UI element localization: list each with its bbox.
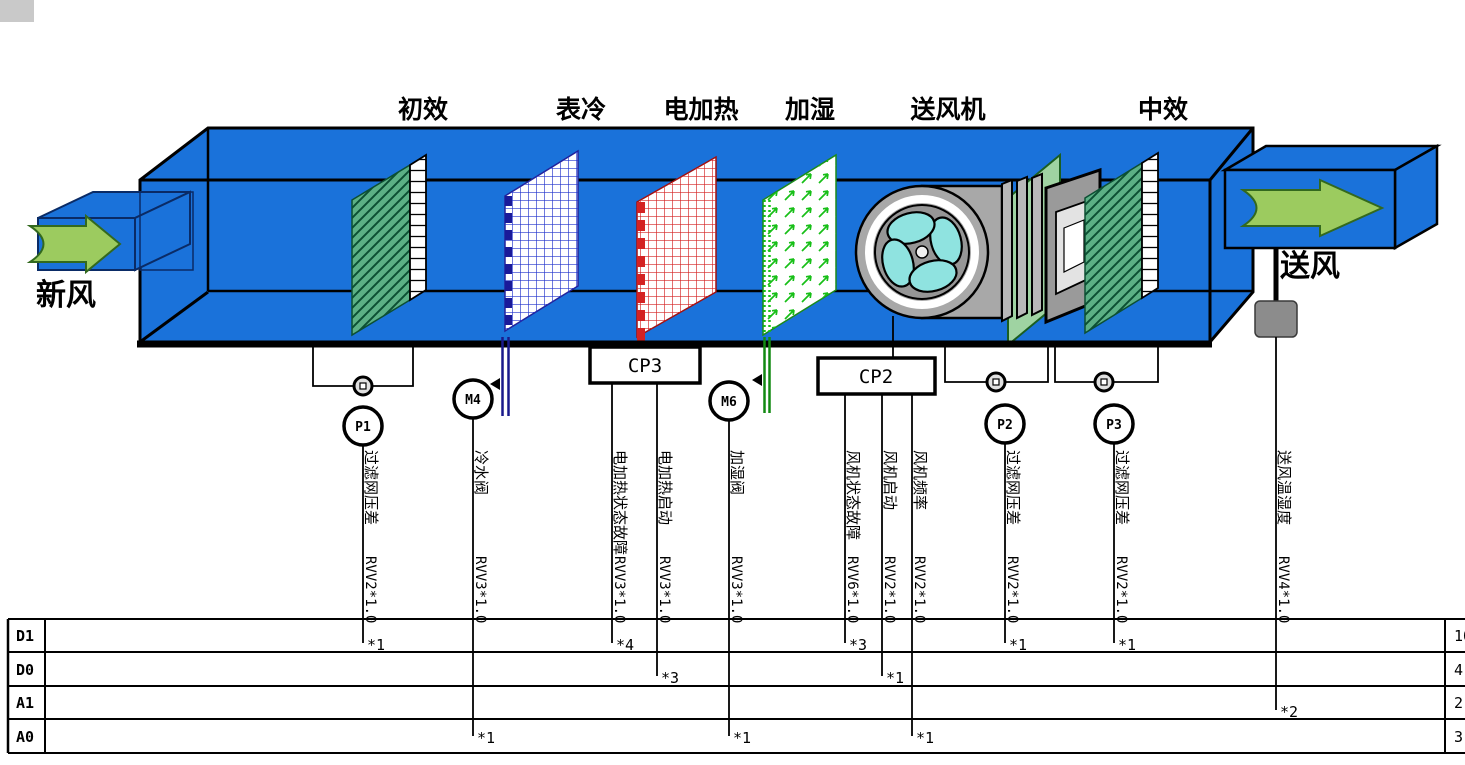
wire-cable-label: RVV4*1.0 [1275, 556, 1291, 623]
terminal-marker: *4 [616, 636, 634, 654]
wire-signal-label: 风机状态故障 [844, 450, 862, 540]
terminal-marker: *2 [1280, 703, 1298, 721]
wire-cable-label: RVV3*1.0 [472, 556, 488, 623]
wire-cable-label: RVV3*1.0 [611, 556, 627, 623]
supply-temp-humidity-sensor [1255, 301, 1297, 337]
wire-cable-label: RVV6*1.0 [844, 556, 860, 623]
dp-tap-icon [1101, 379, 1107, 385]
wire-signal-label: 电加热状态故障 [611, 450, 629, 555]
sensor-p3-label: P3 [1106, 418, 1122, 433]
wire-signal-label: 冷水阀 [472, 450, 490, 495]
wire-signal-label: 风机启动 [881, 450, 899, 510]
terminal-marker: *1 [367, 636, 385, 654]
terminal-marker: *1 [477, 729, 495, 747]
wire-signal-label: 风机频率 [911, 450, 929, 510]
wire-cable-label: RVV2*1.0 [362, 556, 378, 623]
label-cooling-coil: 表冷 [556, 95, 606, 124]
corner-artifact [0, 0, 34, 22]
wire-cable-label: RVV2*1.0 [1113, 556, 1129, 623]
supply-fan [856, 170, 1100, 322]
wire-signal-label: 送风温湿度 [1275, 450, 1293, 525]
label-primary-filter: 初效 [398, 95, 448, 124]
dp-tap-icon [360, 383, 366, 389]
wire-signal-label: 过滤网压差 [362, 450, 380, 525]
terminal-marker: *1 [1118, 636, 1136, 654]
fresh-air-label: 新风 [36, 278, 96, 313]
terminal-marker: *1 [916, 729, 934, 747]
terminal-marker: *3 [849, 636, 867, 654]
wire-signal-label: 加湿阀 [728, 450, 746, 495]
wire-cable-label: RVV2*1.0 [1004, 556, 1020, 623]
supply-air-duct [1225, 146, 1437, 248]
cp2-label: CP2 [859, 366, 893, 388]
sensor-m4-label: M4 [465, 393, 481, 408]
wire-signal-label: 过滤网压差 [1004, 450, 1022, 525]
terminal-marker: *3 [661, 669, 679, 687]
label-medium-filter: 中效 [1138, 95, 1188, 124]
wire-cable-label: RVV2*1.0 [881, 556, 897, 623]
wire-signal-label: 过滤网压差 [1113, 450, 1131, 525]
supply-air-label: 送风 [1280, 249, 1340, 284]
wire-cable-label: RVV3*1.0 [656, 556, 672, 623]
terminal-marker: *1 [1009, 636, 1027, 654]
wire-signal-label: 电加热启动 [656, 450, 674, 525]
row-count-d0: 4 [1454, 661, 1463, 679]
controller-cp3: CP3 [590, 347, 700, 383]
label-humidifier: 加湿 [784, 95, 835, 124]
label-electric-heater: 电加热 [663, 95, 738, 124]
fan-outlet-slats [1002, 174, 1042, 321]
row-label-d1: D1 [16, 627, 34, 645]
label-supply-fan: 送风机 [910, 95, 985, 124]
sensor-p2-label: P2 [997, 418, 1013, 433]
dp-tap-icon [993, 379, 999, 385]
fan-hub [916, 246, 928, 258]
sensor-m6-label: M6 [721, 395, 737, 410]
wire-cable-label: RVV2*1.0 [911, 556, 927, 623]
row-label-d0: D0 [16, 661, 34, 679]
row-count-a0: 3 [1454, 728, 1463, 746]
terminal-marker: *1 [733, 729, 751, 747]
row-label-a1: A1 [16, 694, 34, 712]
row-label-a0: A0 [16, 728, 34, 746]
ahu-wiring-diagram: 新风 送风 初效 表冷 电加热 加湿 送风机 中效 P1 M4 CP3 [0, 0, 1465, 765]
sensor-p1-label: P1 [355, 420, 371, 435]
row-count-a1: 2 [1454, 694, 1463, 712]
wire-cable-label: RVV3*1.0 [728, 556, 744, 623]
row-count-d1: 10 [1454, 627, 1465, 645]
terminal-marker: *1 [886, 669, 904, 687]
cp3-label: CP3 [628, 355, 662, 377]
